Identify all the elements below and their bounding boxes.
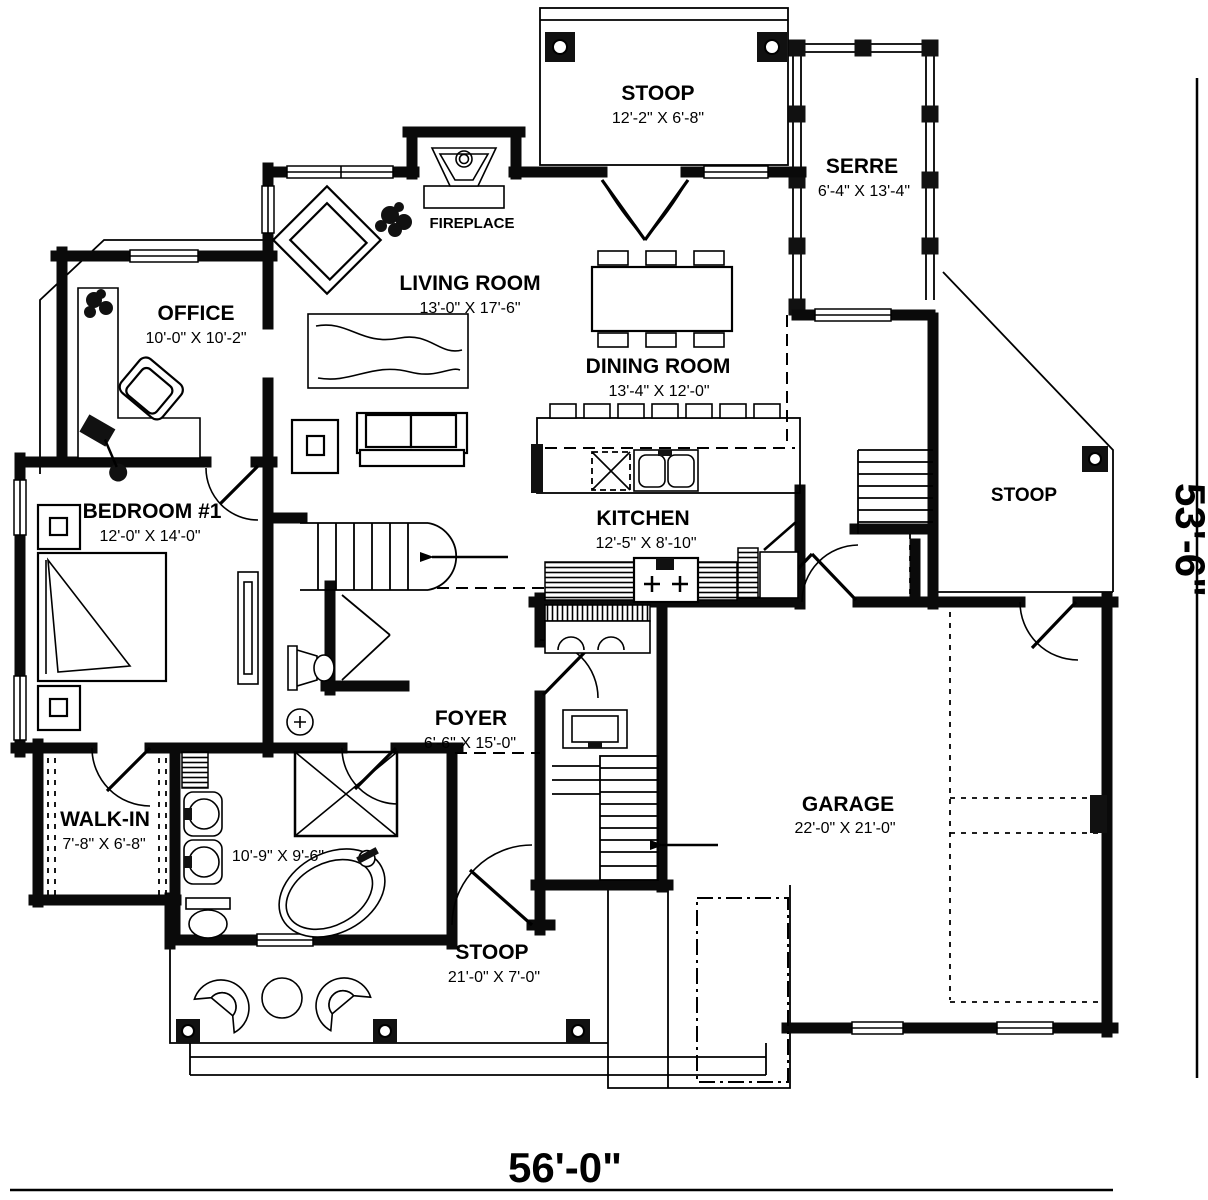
- loveseat: [357, 413, 467, 466]
- window: [815, 309, 891, 321]
- fireplace: [424, 148, 504, 208]
- floor-plan-drawing: STOOP 12'-2" X 6'-8" SERRE 6'-4" X 13'-4…: [0, 0, 1208, 1200]
- pantry-shelves: [738, 548, 758, 598]
- side-table: [292, 420, 338, 473]
- nightstand: [38, 686, 80, 730]
- room-label-stoop-bottom: STOOP: [455, 941, 528, 964]
- label-fireplace: FIREPLACE: [429, 215, 514, 232]
- garage-accents: [1090, 795, 1107, 833]
- bathroom-door: [342, 748, 398, 804]
- post: [757, 32, 787, 62]
- room-dims-serre: 6'-4" X 13'-4": [818, 183, 910, 200]
- room-label-kitchen: KITCHEN: [596, 507, 689, 530]
- room-dims-office: 10'-0" X 10'-2": [145, 330, 246, 347]
- room-dims-stoop-top: 12'-2" X 6'-8": [612, 110, 704, 127]
- window: [262, 186, 274, 233]
- shower: [295, 752, 397, 836]
- front-door: [452, 845, 532, 925]
- room-dims-kitchen: 12'-5" X 8'-10": [595, 535, 696, 552]
- post: [373, 1019, 397, 1043]
- window: [287, 166, 393, 178]
- room-dims-bathroom: 10'-9" X 9'-6": [232, 848, 324, 865]
- sink: [184, 792, 222, 836]
- dishwasher: [592, 452, 630, 490]
- range: [634, 558, 698, 602]
- room-label-living: LIVING ROOM: [399, 272, 540, 295]
- post: [545, 32, 575, 62]
- kitchen-fixtures: [531, 404, 800, 602]
- back-staircase: [858, 450, 933, 534]
- room-dims-foyer: 6'-6" X 15'-0": [424, 735, 516, 752]
- floor-plan-sheet: STOOP 12'-2" X 6'-8" SERRE 6'-4" X 13'-4…: [0, 0, 1208, 1200]
- room-dims-dining: 13'-4" X 12'-0": [608, 383, 709, 400]
- french-doors: [602, 180, 688, 240]
- window: [130, 250, 198, 262]
- room-dims-bedroom1: 12'-0" X 14'-0": [99, 528, 200, 545]
- room-label-dining: DINING ROOM: [586, 355, 731, 378]
- toilet: [186, 898, 230, 938]
- window: [997, 1022, 1053, 1034]
- garage-staircase: [552, 756, 718, 880]
- rug: [308, 314, 468, 388]
- walk-in-door: [92, 748, 150, 806]
- room-label-office: OFFICE: [158, 302, 235, 325]
- room-label-foyer: FOYER: [435, 707, 507, 730]
- window: [704, 166, 768, 178]
- room-label-stoop-top: STOOP: [621, 82, 694, 105]
- bench: [545, 605, 650, 621]
- room-label-walkin: WALK-IN: [60, 808, 150, 831]
- room-dims-living: 13'-0" X 17'-6": [419, 300, 520, 317]
- patio-chair: [305, 967, 373, 1032]
- room-label-bedroom1: BEDROOM #1: [83, 500, 222, 523]
- dining-furniture: [592, 251, 732, 347]
- armchair: [273, 186, 380, 293]
- room-label-stoop-right: STOOP: [991, 485, 1057, 506]
- room-label-garage: GARAGE: [802, 793, 894, 816]
- stoop-furniture: [193, 967, 372, 1034]
- plant: [375, 202, 412, 237]
- post: [1082, 446, 1108, 472]
- room-dims-garage: 22'-0" X 21'-0": [794, 820, 895, 837]
- office-chair: [116, 354, 186, 422]
- patio-chair: [193, 969, 261, 1034]
- room-dims-walkin: 7'-8" X 6'-8": [62, 836, 145, 853]
- window: [14, 480, 26, 535]
- patio-table: [262, 978, 302, 1018]
- room-label-serre: SERRE: [826, 155, 898, 178]
- garage-door: [1020, 602, 1078, 660]
- sink: [184, 840, 222, 884]
- console: [563, 710, 627, 748]
- post: [176, 1019, 200, 1043]
- refrigerator: [760, 522, 798, 598]
- post: [566, 1019, 590, 1043]
- window: [14, 676, 26, 740]
- window: [852, 1022, 903, 1034]
- nightstand: [38, 505, 80, 549]
- dresser: [238, 572, 258, 684]
- ceiling-break-lines: [48, 315, 1104, 1082]
- dimension-height: 53'-6": [1167, 483, 1208, 597]
- dimension-width: 56'-0": [508, 1144, 622, 1191]
- kitchen-sink: [634, 450, 698, 491]
- room-dims-stoop-bottom: 21'-0" X 7'-0": [448, 969, 540, 986]
- bar-stools: [550, 404, 780, 418]
